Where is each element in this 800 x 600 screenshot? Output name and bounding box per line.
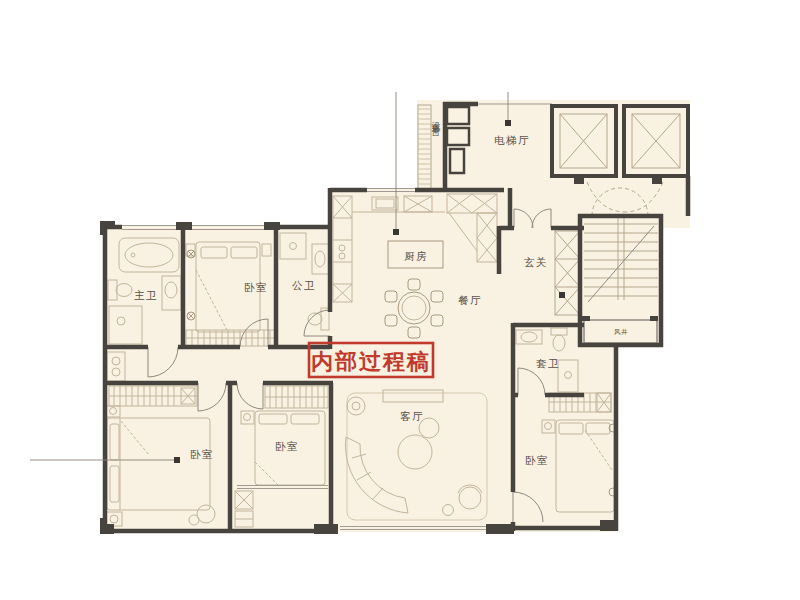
floor-areas xyxy=(105,100,690,532)
marker-square xyxy=(505,120,511,126)
label-bedroom-right: 卧室 xyxy=(525,454,549,466)
draft-stamp: 内部过程稿 xyxy=(309,343,433,377)
label-bedroom-left: 卧室 xyxy=(190,448,214,460)
floor-plan-page: 设备平台 电梯厅 主卫 卧室 公卫 厨房 餐厅 玄关 风井 套卫 客厅 卧室 卧… xyxy=(0,0,800,600)
marker-square xyxy=(393,229,399,235)
label-suite-bath: 套卫 xyxy=(536,357,560,369)
label-public-bath: 公卫 xyxy=(292,279,316,291)
label-master-bath: 主卫 xyxy=(134,289,158,301)
label-bedroom-top: 卧室 xyxy=(244,281,268,293)
label-dining: 餐厅 xyxy=(458,294,482,306)
marker-square xyxy=(559,292,565,298)
label-elevator-hall: 电梯厅 xyxy=(494,134,530,146)
label-bedroom-mid: 卧室 xyxy=(275,440,299,452)
draft-stamp-text: 内部过程稿 xyxy=(311,349,431,374)
label-kitchen: 厨房 xyxy=(404,250,428,262)
marker-square xyxy=(174,457,180,463)
label-air-shaft: 风井 xyxy=(614,328,628,335)
floor-plan-svg: 设备平台 电梯厅 主卫 卧室 公卫 厨房 餐厅 玄关 风井 套卫 客厅 卧室 卧… xyxy=(0,0,800,600)
label-living: 客厅 xyxy=(400,410,424,422)
label-entry: 玄关 xyxy=(524,256,548,268)
